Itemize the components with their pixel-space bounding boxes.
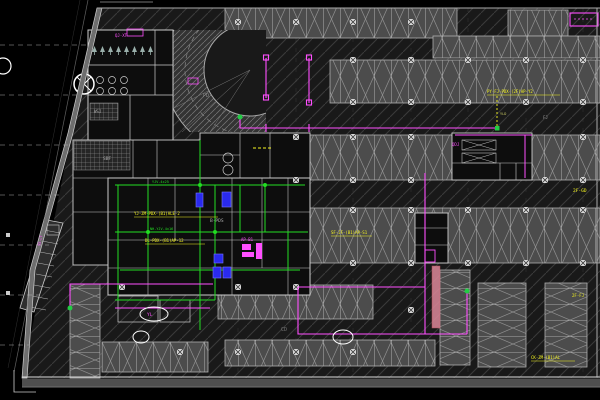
- parking-column: [70, 284, 100, 378]
- label-panel: AP-B1: [241, 237, 254, 242]
- fire-shutter-band: [432, 266, 440, 328]
- parking-row: [310, 208, 600, 263]
- equipment-block: [108, 178, 310, 295]
- label-pump-room: SBF: [103, 156, 111, 162]
- service-block-topleft: [88, 30, 173, 145]
- label-cable-2: NH-YJV-4x16: [150, 227, 173, 231]
- label-garage-light: CK-ZM-(B1)AL: [531, 355, 560, 360]
- cad-canvas: PY-FJ-PDX-(2F)AP-Y2 YJ-ZM-PDX-(B1)ALE-2 …: [0, 0, 600, 400]
- label-supply-fan: SF-JF-(B1)AP-S1: [331, 230, 368, 235]
- label-air-shaft: FJ: [543, 115, 548, 120]
- cad-viewport: PY-FJ-PDX-(2F)AP-Y2 YJ-ZM-PDX-(B1)ALE-2 …: [0, 0, 600, 400]
- label-power-box: DL-PDX-(B1)AP-12: [145, 238, 184, 243]
- shaft-rooms-right: [415, 213, 448, 263]
- label-washroom: WSJ: [94, 109, 101, 114]
- label-shaft: QDJ: [452, 142, 459, 147]
- parking-row: [433, 36, 600, 58]
- label-lane: CD: [281, 327, 287, 333]
- label-substation: B-PDS: [210, 218, 224, 224]
- label-cable-1: YJV-4x25: [152, 180, 169, 184]
- label-fan-feeder: PY-FJ-PDX-(2F)AP-Y2: [487, 89, 533, 94]
- parking-row: [102, 342, 208, 372]
- parking-row: [330, 60, 600, 103]
- label-ramp: PD: [203, 93, 209, 99]
- label-sleeve: YLD: [500, 112, 506, 116]
- label-em-lighting: YJ-ZM-PDX-(B1)ALE-2: [134, 211, 180, 216]
- label-tray-detail: QJ-XT: [115, 33, 128, 38]
- fan-room-right: [452, 133, 532, 180]
- label-2f-feed: 2F-GD: [573, 188, 587, 194]
- parking-column: [478, 283, 526, 367]
- parking-row: [225, 340, 435, 366]
- label-2f-fan: 2F-FJ: [572, 293, 584, 298]
- parking-row: [508, 10, 568, 36]
- parking-column: [440, 270, 470, 365]
- label-reserved: YL: [147, 312, 153, 318]
